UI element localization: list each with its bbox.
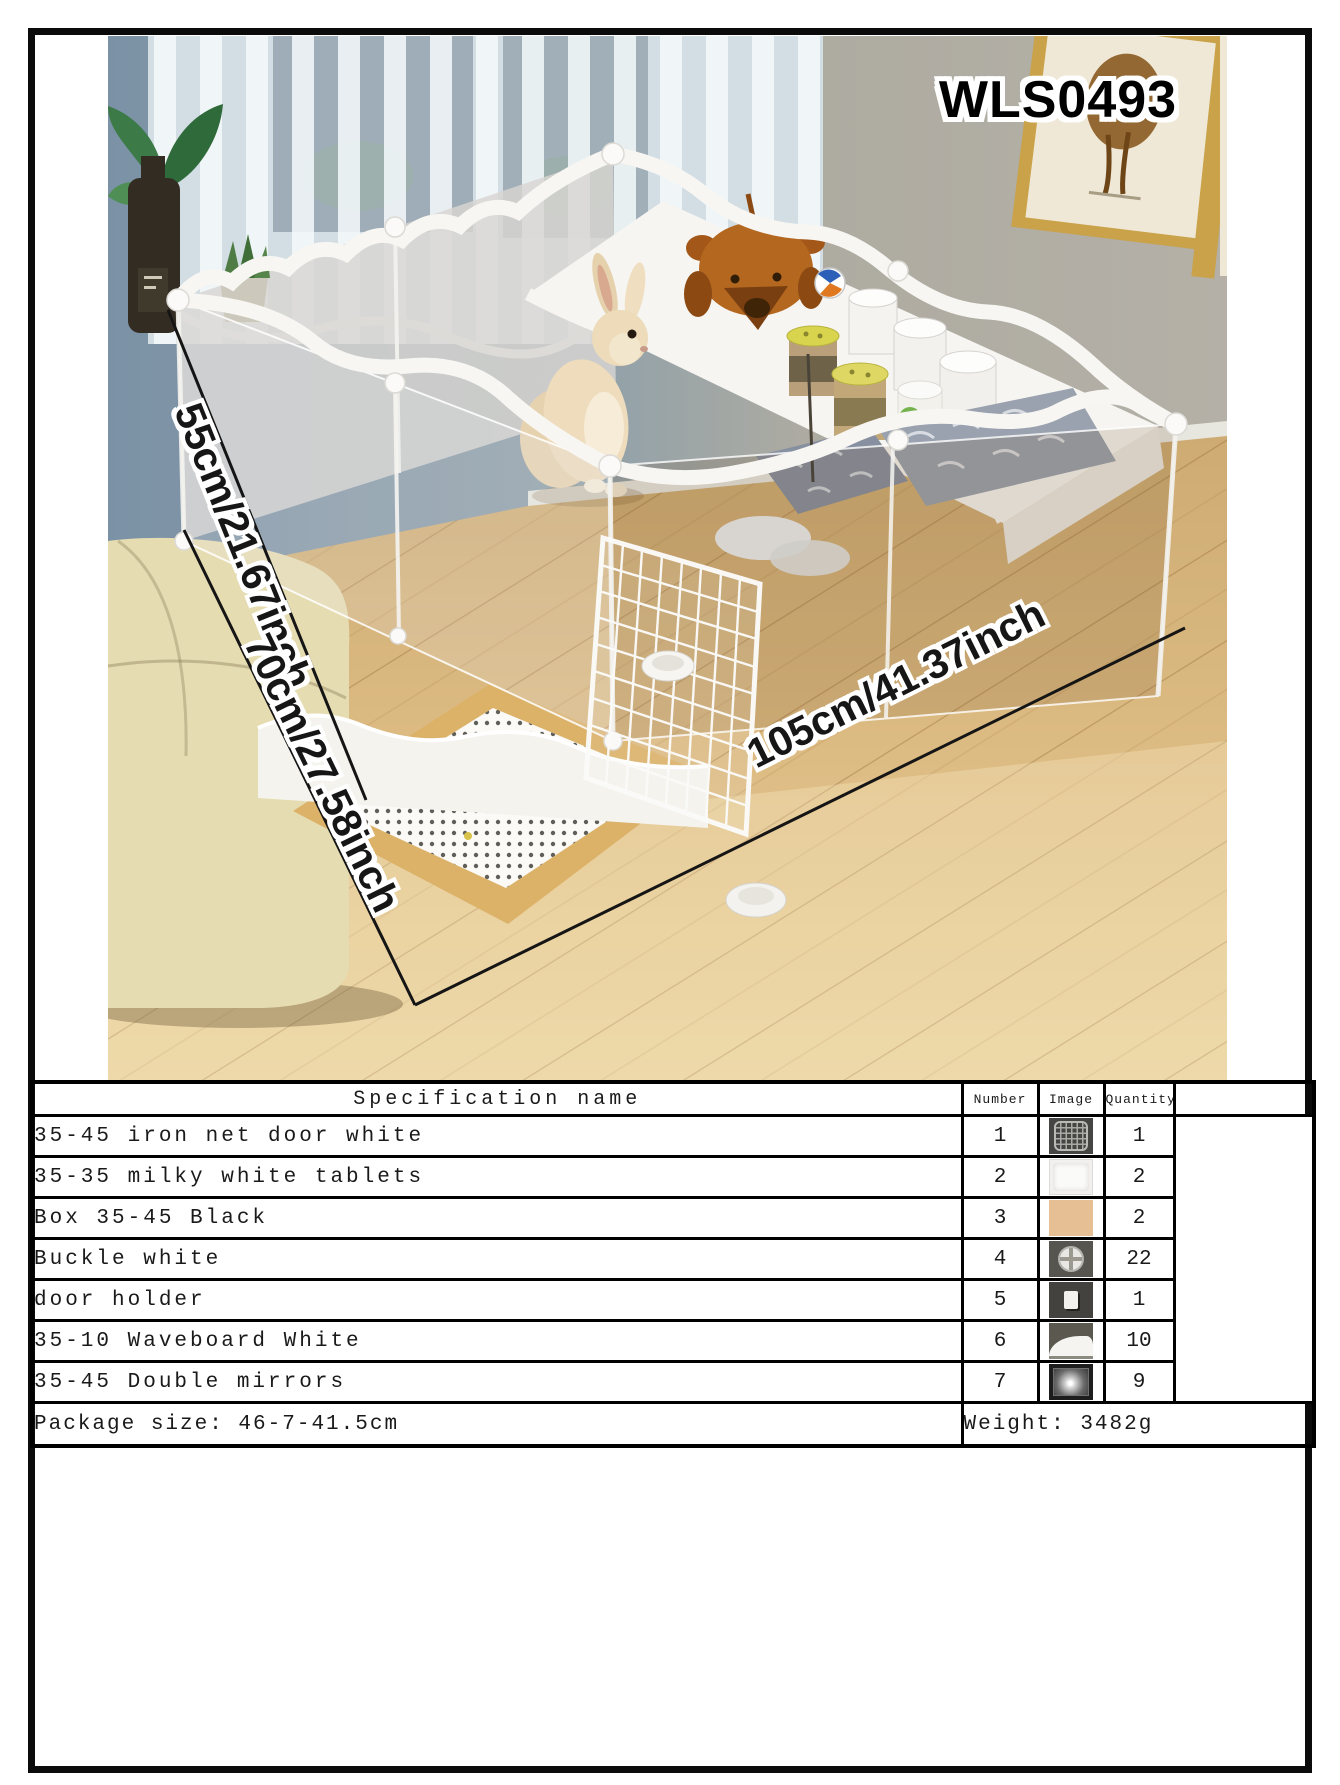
spec-name: Buckle white — [32, 1239, 962, 1280]
spec-quantity: 2 — [1104, 1198, 1174, 1239]
spec-number: 6 — [962, 1321, 1038, 1362]
white-buckle-thumbnail — [1049, 1241, 1093, 1277]
spec-quantity: 10 — [1104, 1321, 1174, 1362]
table-footer-row: Package size: 46-7-41.5cm Weight: 3482g — [32, 1403, 1314, 1447]
table-row: 35-10 Waveboard White 6 10 — [32, 1321, 1314, 1362]
product-spec-sheet: { "product": { "code": "WLS0493" }, "pho… — [0, 0, 1340, 1785]
product-photo: WLS0493 55cm/21.67inch 70cm/27.58inch 10… — [108, 36, 1227, 1080]
table-row: 35-45 Double mirrors 7 9 — [32, 1362, 1314, 1403]
room-scene — [108, 36, 1227, 1080]
iron-net-door-thumbnail — [1049, 1118, 1093, 1154]
package-size: Package size: 46-7-41.5cm — [32, 1403, 962, 1447]
wall-picture-frame — [1011, 36, 1227, 251]
spec-quantity: 9 — [1104, 1362, 1174, 1403]
spec-image-cell — [1038, 1321, 1104, 1362]
specification-table: Specification name Number Image Quantity… — [30, 1080, 1316, 1448]
spec-quantity: 1 — [1104, 1280, 1174, 1321]
table-row: door holder 5 1 — [32, 1280, 1314, 1321]
table-row: Box 35-45 Black 3 2 — [32, 1198, 1314, 1239]
spec-name: 35-45 iron net door white — [32, 1116, 962, 1157]
spec-number: 3 — [962, 1198, 1038, 1239]
spec-image-cell — [1038, 1280, 1104, 1321]
spec-number: 1 — [962, 1116, 1038, 1157]
product-code: WLS0493 — [939, 70, 1177, 130]
spec-image-cell — [1038, 1198, 1104, 1239]
double-mirror-thumbnail — [1049, 1364, 1093, 1400]
table-filler-cell — [1174, 1116, 1314, 1403]
spec-image-cell — [1038, 1116, 1104, 1157]
waveboard-thumbnail — [1049, 1323, 1093, 1359]
spec-name: door holder — [32, 1280, 962, 1321]
header-image: Image — [1038, 1082, 1104, 1116]
spec-quantity: 2 — [1104, 1157, 1174, 1198]
spec-name: 35-10 Waveboard White — [32, 1321, 962, 1362]
milky-white-tablet-thumbnail — [1049, 1159, 1093, 1195]
spec-number: 4 — [962, 1239, 1038, 1280]
spec-quantity: 1 — [1104, 1116, 1174, 1157]
table-row: 35-35 milky white tablets 2 2 — [32, 1157, 1314, 1198]
table-row: Buckle white 4 22 — [32, 1239, 1314, 1280]
door-holder-thumbnail — [1049, 1282, 1093, 1318]
spec-image-cell — [1038, 1362, 1104, 1403]
spec-number: 7 — [962, 1362, 1038, 1403]
package-weight: Weight: 3482g — [962, 1403, 1314, 1447]
spec-quantity: 22 — [1104, 1239, 1174, 1280]
header-number: Number — [962, 1082, 1038, 1116]
header-specification-name: Specification name — [32, 1082, 962, 1116]
spec-name: 35-35 milky white tablets — [32, 1157, 962, 1198]
spec-name: 35-45 Double mirrors — [32, 1362, 962, 1403]
spec-name: Box 35-45 Black — [32, 1198, 962, 1239]
spec-image-cell — [1038, 1157, 1104, 1198]
spec-image-cell — [1038, 1239, 1104, 1280]
spec-number: 5 — [962, 1280, 1038, 1321]
toy-ball — [815, 268, 845, 298]
table-header-row: Specification name Number Image Quantity — [32, 1082, 1314, 1116]
black-box-thumbnail — [1049, 1200, 1093, 1236]
header-quantity: Quantity — [1104, 1082, 1174, 1116]
header-filler-cell — [1174, 1082, 1314, 1116]
spec-number: 2 — [962, 1157, 1038, 1198]
table-row: 35-45 iron net door white 1 1 — [32, 1116, 1314, 1157]
iron-net-door — [586, 538, 760, 834]
